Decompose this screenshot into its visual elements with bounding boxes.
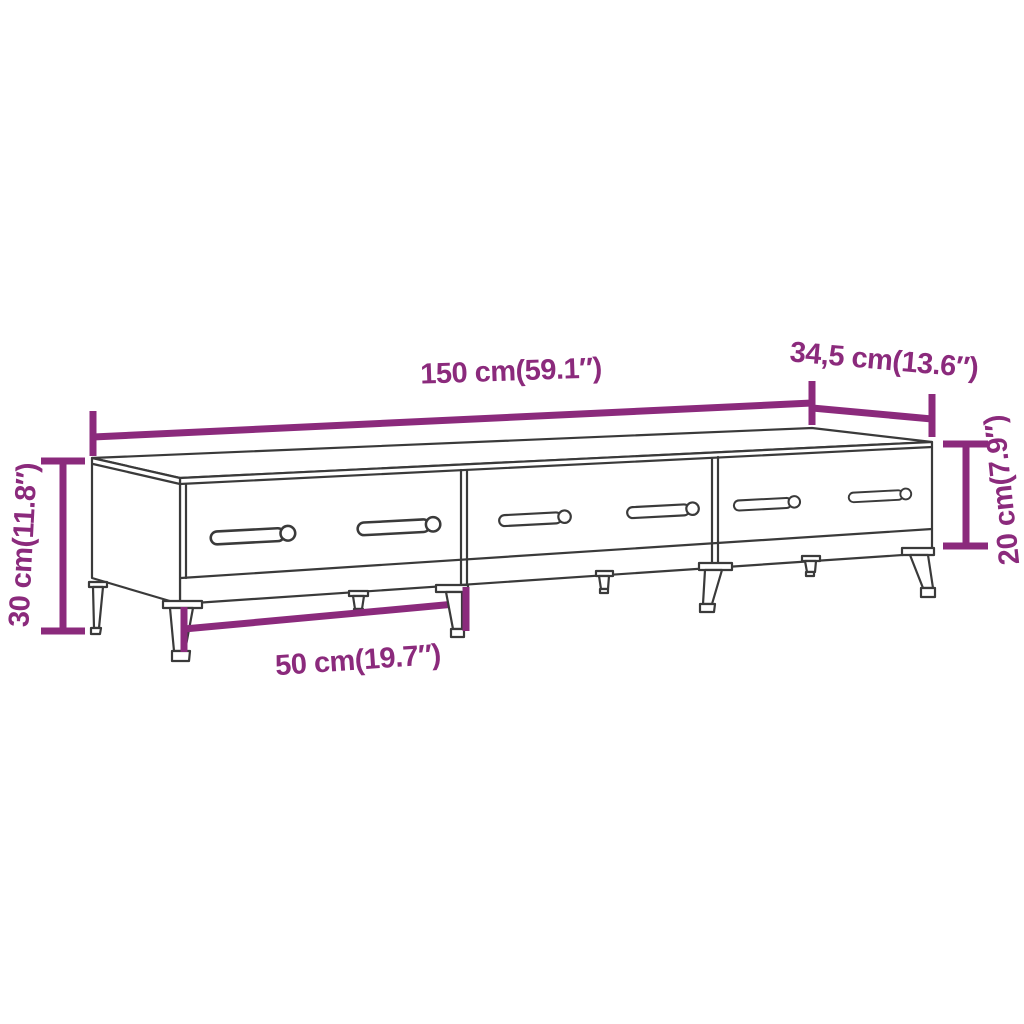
width-dimension-label: 150 cm(59.1″): [420, 354, 602, 389]
drawer-width-dimension-line: [184, 603, 466, 629]
product-dimension-diagram: 150 cm(59.1″) 34,5 cm(13.6″) 30 cm(11.8″…: [0, 0, 1024, 1024]
leg-back-mid-3: [802, 556, 820, 576]
leg-front-divider-2: [699, 563, 732, 612]
leg-back-mid-2: [596, 571, 613, 593]
cabinet-height-dimension: [943, 444, 988, 546]
tv-stand-line-drawing: [0, 0, 1024, 1024]
leg-front-right: [902, 548, 935, 597]
total-height-dimension: [41, 461, 85, 631]
leg-back-left: [89, 582, 107, 634]
